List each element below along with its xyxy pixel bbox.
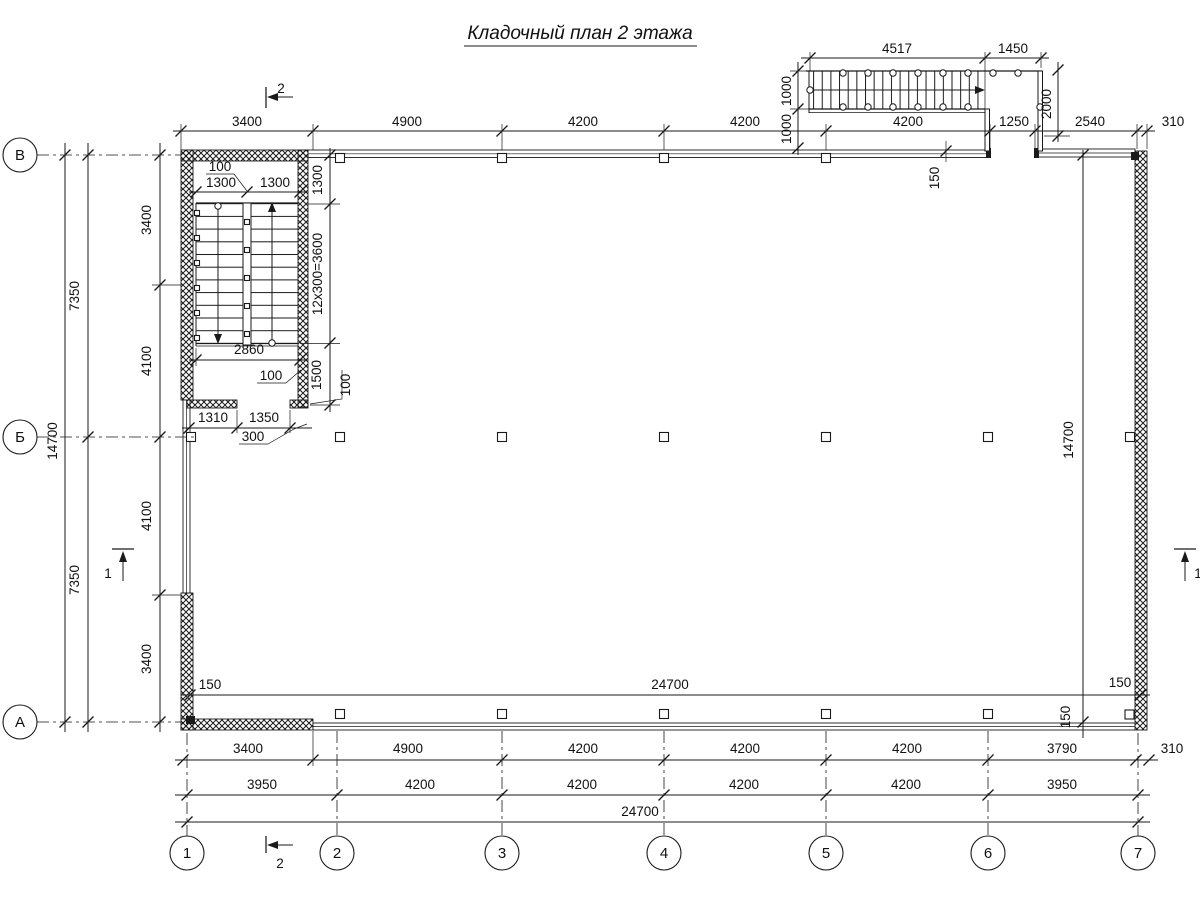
- dim-left: 14700 7350 7350 3400 4100 4100 3400: [37, 143, 196, 732]
- dim-label: 150: [1058, 706, 1073, 729]
- dim-label: 2540: [1075, 114, 1105, 129]
- dim-label: 4200: [405, 777, 435, 792]
- dim-interior: 150 24700 150 14700 150: [181, 150, 1150, 739]
- dim-label: 4200: [892, 741, 922, 756]
- dim-label: 1000: [779, 76, 794, 106]
- floor-plan-drawing: Кладочный план 2 этажа: [0, 0, 1200, 900]
- dim-label: 1500: [309, 360, 324, 390]
- dim-label: 4517: [882, 41, 912, 56]
- dim-label: 2860: [234, 342, 264, 357]
- axis-label: В: [15, 147, 25, 164]
- dim-bottom-rows: 3400 4900 4200 4200 4200 3790 310 3950 4…: [175, 731, 1183, 836]
- dim-label: 14700: [45, 422, 60, 460]
- axis-label: 3: [498, 845, 506, 862]
- dim-label: 100: [338, 374, 353, 397]
- dim-label: 1300: [260, 175, 290, 190]
- axis-label: 1: [183, 845, 191, 862]
- interior-staircase: [195, 202, 299, 346]
- dim-label: 3400: [233, 741, 263, 756]
- dim-label: 300: [242, 429, 265, 444]
- dim-top-row: 3400 4900 4200 4200 4200 1250 2540 310: [173, 114, 1184, 150]
- axis-label: 7: [1134, 845, 1142, 862]
- dim-label: 310: [1161, 741, 1184, 756]
- dim-label: 150: [927, 167, 942, 190]
- page-title: Кладочный план 2 этажа: [467, 23, 692, 44]
- dim-label: 100: [209, 159, 232, 174]
- drawing-title: Кладочный план 2 этажа: [464, 23, 697, 46]
- section-2-bottom: 2: [266, 836, 293, 871]
- axis-label: Б: [15, 429, 25, 446]
- dim-label: 4100: [139, 501, 154, 531]
- dim-label: 4200: [568, 114, 598, 129]
- dim-label: 4200: [729, 777, 759, 792]
- dim-label: 1250: [999, 114, 1029, 129]
- dim-label: 1450: [998, 41, 1028, 56]
- section-label: 2: [277, 81, 285, 96]
- section-2-top: 2: [266, 81, 293, 108]
- dim-label: 4100: [139, 346, 154, 376]
- corner-cap-bottom-right: [1125, 710, 1134, 719]
- axis-label: 5: [822, 845, 830, 862]
- dim-label: 3400: [139, 644, 154, 674]
- axis-label: 6: [984, 845, 992, 862]
- dim-label: 4200: [893, 114, 923, 129]
- wall-right: [1135, 151, 1147, 730]
- section-markers: 2 2 1 1: [104, 81, 1200, 871]
- dim-label: 4200: [730, 741, 760, 756]
- columns: [187, 154, 1135, 719]
- dim-label: 3950: [247, 777, 277, 792]
- dim-label: 7350: [67, 281, 82, 311]
- dim-label: 4200: [730, 114, 760, 129]
- dim-label: 1310: [198, 410, 228, 425]
- dim-label: 3950: [1047, 777, 1077, 792]
- section-1-right: 1: [1174, 549, 1200, 581]
- dim-label: 4200: [567, 777, 597, 792]
- axis-label: 4: [660, 845, 668, 862]
- dim-label: 4200: [891, 777, 921, 792]
- dim-label: 150: [1109, 675, 1132, 690]
- wall-top-stair: [181, 150, 308, 161]
- dim-label: 1350: [249, 410, 279, 425]
- dim-label: 3790: [1047, 741, 1077, 756]
- wall-stair-enclosure-bottom-left: [187, 400, 237, 408]
- dim-label: 1000: [779, 114, 794, 144]
- dim-label: 12x300=3600: [310, 233, 325, 315]
- section-1-left: 1: [104, 549, 134, 581]
- section-label: 1: [1194, 566, 1200, 581]
- dim-label: 4900: [392, 114, 422, 129]
- corner-cap-bottom-left: [186, 716, 195, 724]
- row-axis-bubbles: В Б А: [3, 138, 37, 739]
- section-label: 2: [276, 856, 284, 871]
- dim-label: 1300: [206, 175, 236, 190]
- wall-bottom-left: [181, 719, 313, 730]
- dim-label: 3400: [232, 114, 262, 129]
- dim-label: 150: [199, 677, 222, 692]
- dim-label: 100: [260, 368, 283, 383]
- dim-label: 4900: [393, 741, 423, 756]
- axis-label: 2: [333, 845, 341, 862]
- dim-label: 7350: [67, 565, 82, 595]
- dim-label: 3400: [139, 205, 154, 235]
- exterior-stair: [806, 70, 1043, 151]
- dim-label: 14700: [1061, 421, 1076, 459]
- axis-label: А: [15, 714, 25, 731]
- wall-left-upper: [181, 150, 193, 400]
- dim-label: 4200: [568, 741, 598, 756]
- section-label: 1: [104, 566, 112, 581]
- dim-label: 1300: [310, 165, 325, 195]
- corner-cap-top-right: [1131, 152, 1139, 160]
- wall-left-lower: [181, 593, 193, 730]
- dim-label: 2000: [1039, 89, 1054, 119]
- dim-label: 24700: [621, 804, 659, 819]
- column-axis-bubbles: 1 2 3 4 5 6 7: [170, 836, 1155, 870]
- dim-label: 24700: [651, 677, 689, 692]
- dim-label: 310: [1162, 114, 1185, 129]
- wall-stair-enclosure-bottom-right: [290, 400, 308, 408]
